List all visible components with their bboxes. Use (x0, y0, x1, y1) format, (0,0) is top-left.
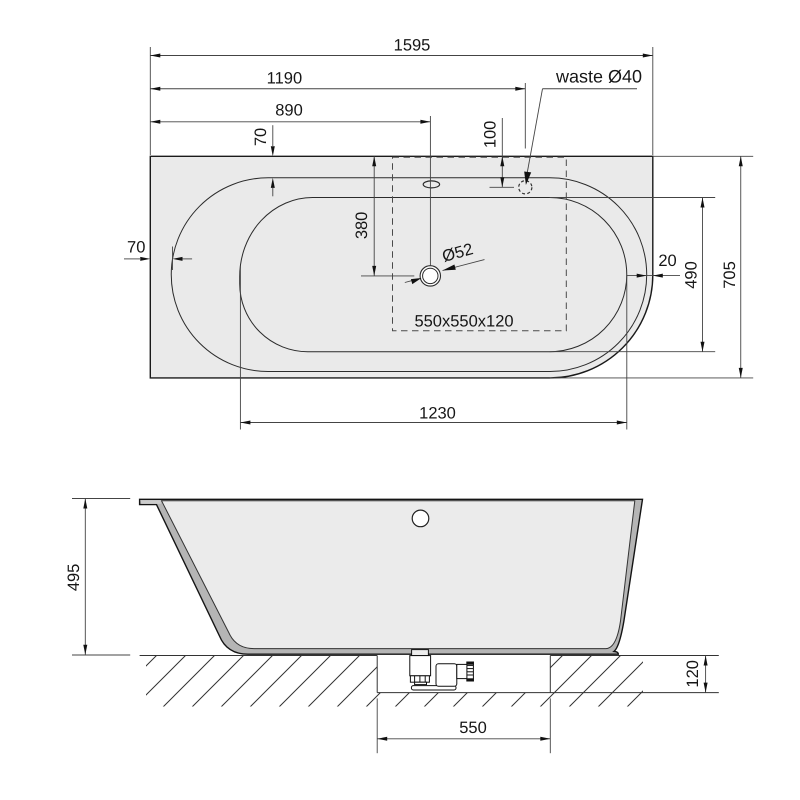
svg-text:705: 705 (721, 261, 739, 289)
svg-text:100: 100 (482, 121, 500, 149)
svg-text:120: 120 (684, 660, 702, 688)
svg-text:70: 70 (127, 238, 145, 256)
svg-text:890: 890 (275, 102, 303, 120)
svg-text:1595: 1595 (394, 37, 431, 55)
svg-text:495: 495 (65, 564, 83, 592)
svg-text:1230: 1230 (419, 405, 456, 423)
svg-text:550: 550 (459, 719, 487, 737)
svg-text:70: 70 (252, 128, 270, 146)
svg-text:490: 490 (683, 261, 701, 289)
svg-text:1190: 1190 (267, 70, 302, 88)
svg-text:waste Ø40: waste Ø40 (555, 67, 642, 87)
svg-text:550x550x120: 550x550x120 (414, 313, 513, 331)
svg-text:20: 20 (658, 252, 676, 270)
svg-text:380: 380 (353, 212, 371, 240)
